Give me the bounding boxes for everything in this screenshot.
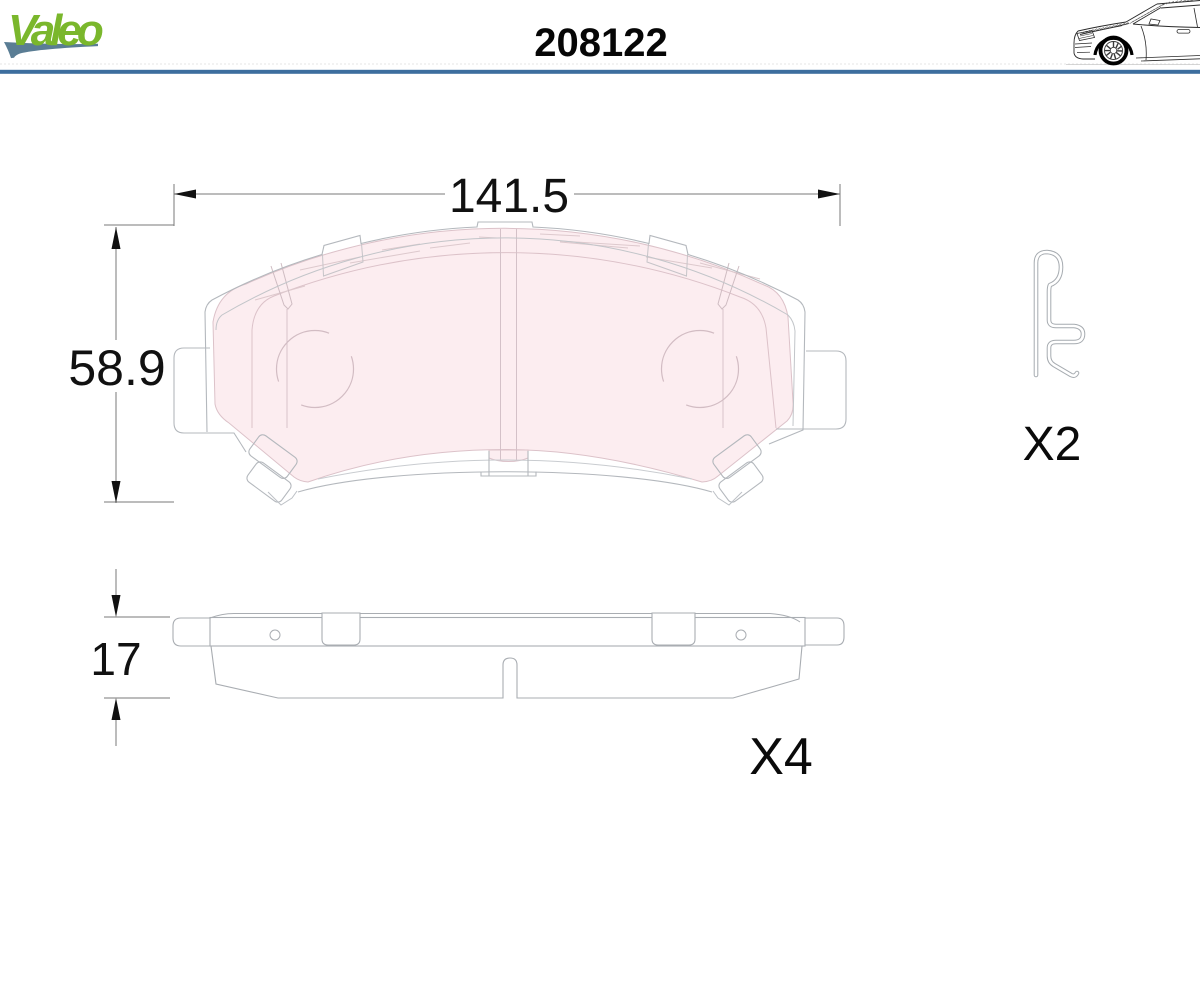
svg-text:141.5: 141.5	[449, 170, 569, 223]
svg-text:X2: X2	[1023, 418, 1082, 471]
svg-text:58.9: 58.9	[68, 340, 165, 396]
svg-text:17: 17	[90, 633, 141, 685]
svg-text:208122: 208122	[534, 21, 667, 65]
svg-text:Valeo: Valeo	[8, 6, 103, 55]
svg-text:X4: X4	[749, 728, 813, 786]
